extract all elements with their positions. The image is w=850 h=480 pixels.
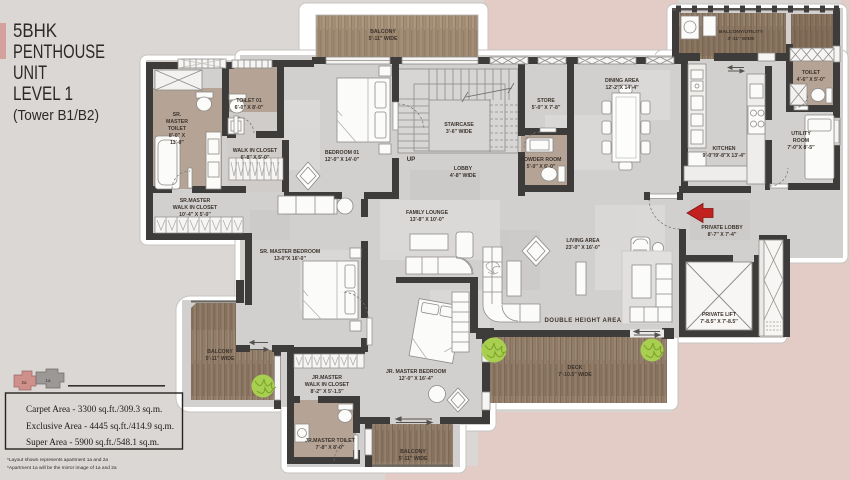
- svg-text:LOBBY: LOBBY: [454, 166, 473, 172]
- svg-text:PRIVATE LIFT: PRIVATE LIFT: [702, 312, 737, 318]
- svg-text:STORE: STORE: [537, 98, 555, 104]
- svg-text:5′-0″ X 6′-0″: 5′-0″ X 6′-0″: [527, 164, 556, 170]
- svg-text:3′-11″ WIDE: 3′-11″ WIDE: [727, 36, 755, 42]
- svg-text:8′-0″ X: 8′-0″ X: [169, 133, 186, 139]
- svg-text:11′-0″: 11′-0″: [170, 140, 184, 146]
- svg-text:UNIT: UNIT: [13, 63, 47, 84]
- svg-text:4′-8″ WIDE: 4′-8″ WIDE: [450, 173, 477, 179]
- svg-text:3′-6″ WIDE: 3′-6″ WIDE: [446, 129, 473, 135]
- svg-text:7′-10.5″ WIDE: 7′-10.5″ WIDE: [558, 372, 592, 378]
- svg-text:6′-0″ X 8′-0″: 6′-0″ X 8′-0″: [235, 105, 264, 111]
- svg-text:JR.MASTER TOILET: JR.MASTER TOILET: [305, 438, 356, 444]
- svg-text:BALCONY/UTILITY: BALCONY/UTILITY: [719, 29, 764, 35]
- svg-text:12′-0″ X 14′-0″: 12′-0″ X 14′-0″: [325, 157, 360, 163]
- svg-text:23′-0″ X 16′-0″: 23′-0″ X 16′-0″: [566, 245, 601, 251]
- svg-text:SR.MASTER: SR.MASTER: [180, 198, 211, 204]
- svg-text:(Tower B1/B2): (Tower B1/B2): [13, 107, 99, 124]
- svg-text:6′-8″ X 5′-0″: 6′-8″ X 5′-0″: [241, 155, 270, 161]
- svg-text:5′-0″ X 7′-8″: 5′-0″ X 7′-8″: [532, 105, 561, 111]
- svg-text:5BHK: 5BHK: [13, 21, 57, 42]
- svg-text:ROOM: ROOM: [793, 138, 809, 144]
- svg-text:2a: 2a: [21, 380, 27, 385]
- svg-text:10′-4″ X 5′-0″: 10′-4″ X 5′-0″: [179, 212, 211, 218]
- svg-text:UP: UP: [407, 156, 416, 163]
- svg-text:*Apartment 1a will be the mirr: *Apartment 1a will be the mirror image o…: [7, 465, 117, 471]
- svg-text:8′-7″ X 7′-4″: 8′-7″ X 7′-4″: [708, 232, 737, 238]
- svg-text:SR. MASTER BEDROOM: SR. MASTER BEDROOM: [260, 249, 321, 255]
- svg-text:LIVING AREA: LIVING AREA: [566, 238, 599, 244]
- svg-text:TOILET: TOILET: [802, 70, 821, 76]
- svg-text:WALK IN CLOSET: WALK IN CLOSET: [173, 205, 218, 211]
- svg-text:*Layout shown represents apart: *Layout shown represents apartment 1a an…: [7, 457, 108, 463]
- svg-text:13-0″X 16′-0″: 13-0″X 16′-0″: [274, 256, 306, 262]
- svg-text:1a: 1a: [45, 378, 51, 383]
- svg-text:TOILET: TOILET: [168, 126, 187, 132]
- svg-text:DINING AREA: DINING AREA: [605, 78, 639, 84]
- svg-text:Carpet Area - 3300 sq.ft./309.: Carpet Area - 3300 sq.ft./309.3 sq.m.: [26, 404, 162, 414]
- svg-text:5′-11″ WIDE: 5′-11″ WIDE: [399, 456, 428, 462]
- svg-text:BALCONY: BALCONY: [370, 29, 396, 35]
- svg-text:PENTHOUSE: PENTHOUSE: [13, 42, 105, 63]
- svg-text:12′-0″ X 16′-4″: 12′-0″ X 16′-4″: [399, 376, 434, 382]
- svg-text:TOILET 01: TOILET 01: [236, 98, 262, 104]
- svg-text:9′-0″/9′-8″X 13′-4″: 9′-0″/9′-8″X 13′-4″: [703, 153, 746, 159]
- svg-text:13′-8″ X 10′-0″: 13′-8″ X 10′-0″: [410, 217, 445, 223]
- svg-text:5′-11″ WIDE: 5′-11″ WIDE: [206, 356, 235, 362]
- svg-text:BALCONY: BALCONY: [207, 349, 233, 355]
- svg-text:5′-11″ WIDE: 5′-11″ WIDE: [369, 36, 398, 42]
- svg-text:8′-2″ X 5′-1.5″: 8′-2″ X 5′-1.5″: [310, 389, 344, 395]
- svg-text:4′-6″ X 5′-0″: 4′-6″ X 5′-0″: [797, 77, 826, 83]
- svg-text:PRIVATE LOBBY: PRIVATE LOBBY: [701, 225, 743, 231]
- svg-text:12′-2″X 14′-4″: 12′-2″X 14′-4″: [605, 85, 639, 91]
- svg-text:UTILITY: UTILITY: [791, 131, 811, 137]
- svg-text:WALK IN CLOSET: WALK IN CLOSET: [305, 382, 350, 388]
- svg-text:BALCONY: BALCONY: [400, 449, 426, 455]
- svg-text:MASTER: MASTER: [166, 119, 188, 125]
- svg-text:DECK: DECK: [568, 365, 583, 371]
- svg-text:BEDROOM 01: BEDROOM 01: [325, 150, 359, 156]
- svg-text:STAIRCASE: STAIRCASE: [444, 122, 474, 128]
- svg-text:Super Area - 5900 sq.ft./548.1: Super Area - 5900 sq.ft./548.1 sq.m.: [26, 437, 159, 447]
- svg-text:JR.MASTER: JR.MASTER: [312, 375, 342, 381]
- svg-text:POWDER ROOM: POWDER ROOM: [521, 157, 562, 163]
- svg-text:SR.: SR.: [173, 112, 182, 118]
- svg-text:DOUBLE HEIGHT AREA: DOUBLE HEIGHT AREA: [544, 318, 621, 324]
- svg-text:WALK IN CLOSET: WALK IN CLOSET: [233, 148, 278, 154]
- svg-text:7′-8″ X 8′-0″: 7′-8″ X 8′-0″: [316, 445, 345, 451]
- svg-text:JR. MASTER BEDROOM: JR. MASTER BEDROOM: [386, 369, 446, 375]
- svg-text:7′-8.5″ X 7′-8.5″: 7′-8.5″ X 7′-8.5″: [700, 319, 738, 325]
- svg-text:LEVEL 1: LEVEL 1: [13, 84, 73, 105]
- svg-text:KITCHEN: KITCHEN: [712, 146, 735, 152]
- svg-text:7′-0″X 8′-5″: 7′-0″X 8′-5″: [787, 145, 815, 151]
- svg-text:FAMILY LOUNGE: FAMILY LOUNGE: [406, 210, 449, 216]
- svg-text:Exclusive Area - 4445 sq.ft./4: Exclusive Area - 4445 sq.ft./414.9 sq.m.: [26, 421, 174, 431]
